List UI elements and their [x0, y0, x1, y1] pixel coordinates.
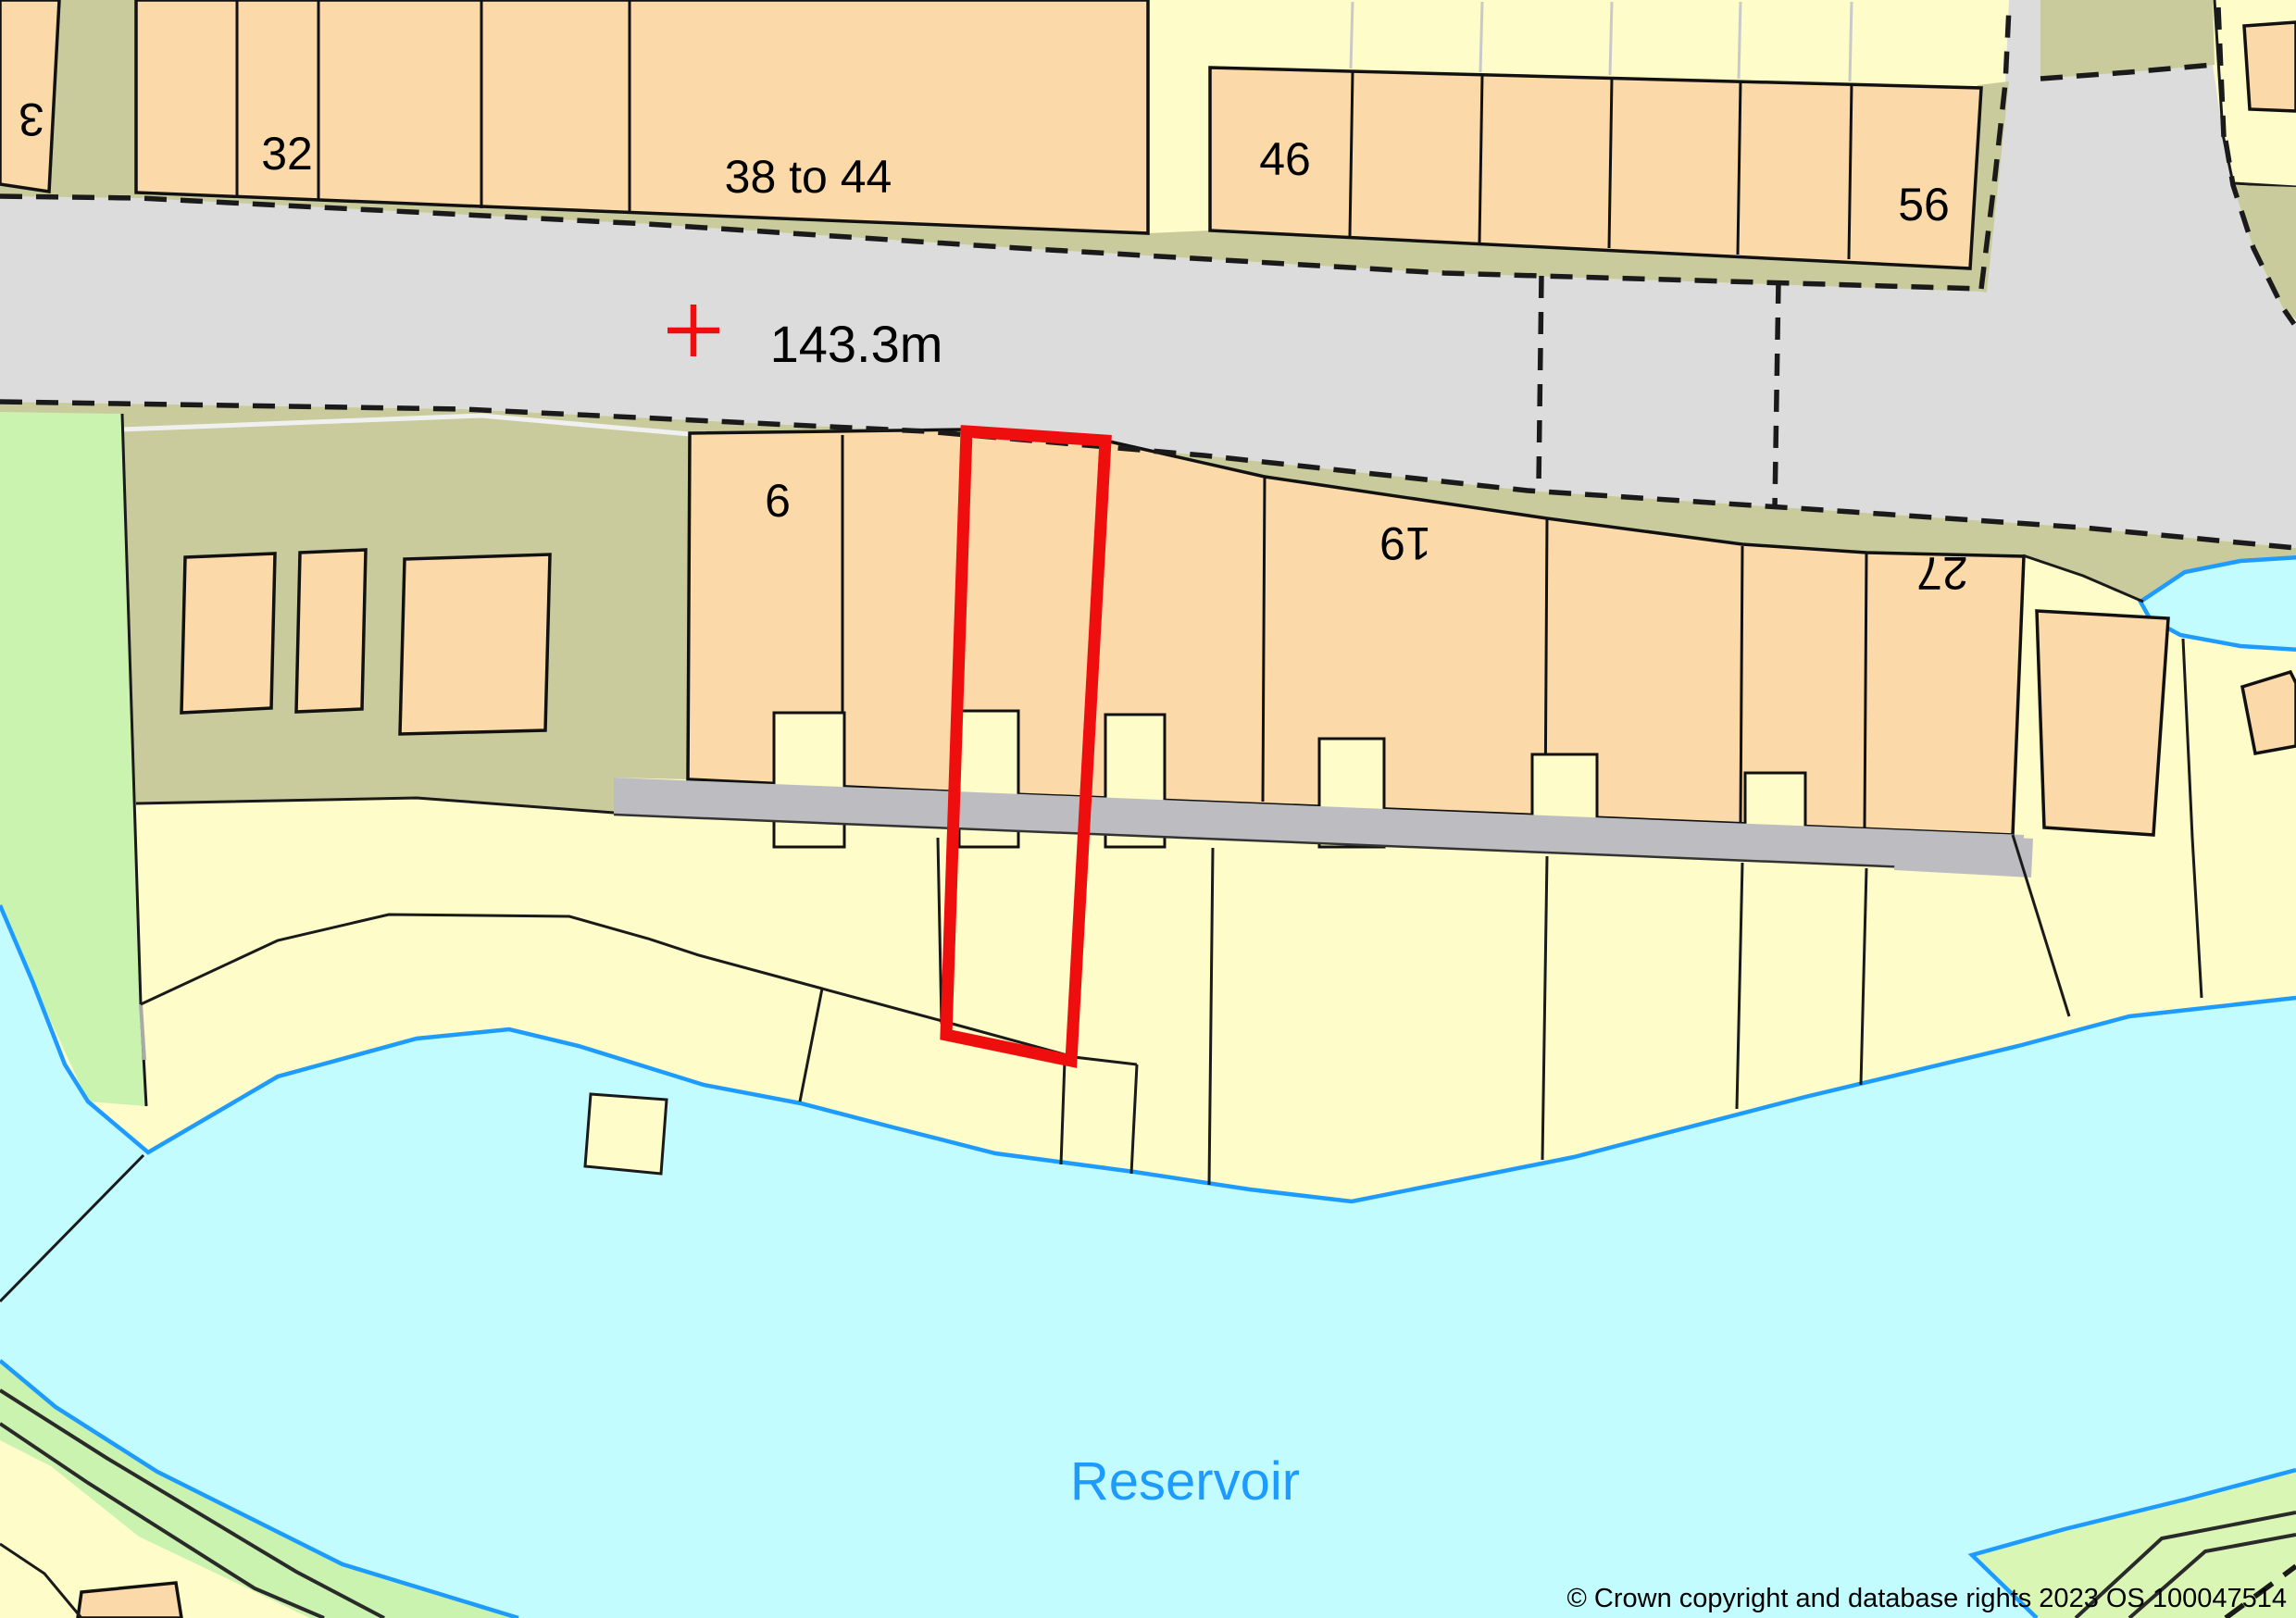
label-building-6: 6: [765, 475, 791, 527]
building-detached-right: [2037, 611, 2168, 835]
label-reservoir: Reservoir: [1070, 1451, 1300, 1512]
building-topright-2: [2244, 22, 2296, 111]
map-canvas: 3 32 38 to 44 46 56 6 19 27 143.3m Reser…: [0, 0, 2296, 1618]
label-spot-height: 143.3m: [770, 315, 943, 373]
os-map-extract: 3 32 38 to 44 46 56 6 19 27 143.3m Reser…: [0, 0, 2296, 1618]
outbuilding-3: [400, 554, 550, 734]
label-building-3: 3: [19, 93, 44, 145]
shore-plot-quad: [585, 1094, 667, 1174]
label-building-27: 27: [1916, 547, 1968, 599]
label-building-19: 19: [1379, 517, 1431, 569]
label-building-56: 56: [1898, 179, 1950, 230]
label-building-32: 32: [261, 128, 313, 180]
label-building-38-44: 38 to 44: [725, 151, 892, 203]
outbuilding-2: [296, 550, 366, 712]
terrace-32-44: [136, 0, 1148, 233]
copyright-notice: © Crown copyright and database rights 20…: [1567, 1584, 2288, 1613]
verge-gap-topleft: [49, 0, 136, 197]
outbuilding-1: [181, 554, 275, 713]
label-building-46: 46: [1259, 133, 1311, 185]
path-stub-right: [1894, 831, 2033, 877]
